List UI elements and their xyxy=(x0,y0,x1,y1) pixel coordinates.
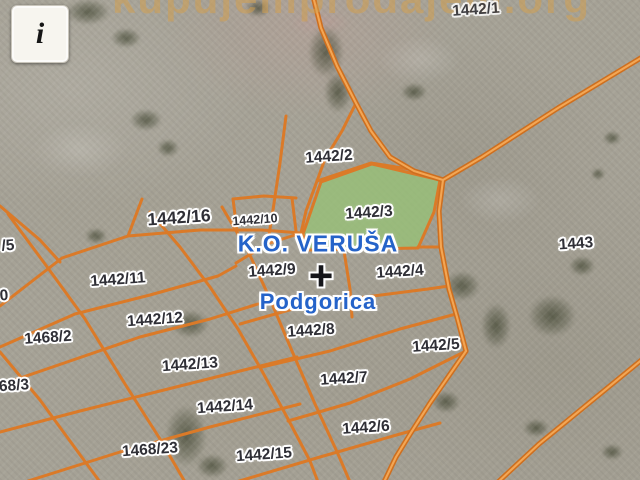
parcel-label-1442-3: 1442/3 xyxy=(345,204,393,223)
parcel-label-1442-4: 1442/4 xyxy=(376,263,424,282)
parcel-label-1442-2: 1442/2 xyxy=(305,148,353,167)
parcel-label-1442-5: 1442/5 xyxy=(412,337,460,356)
cadastral-map-viewer: kupujemprodajem.org 1442/11442/21442/314… xyxy=(0,0,640,480)
parcel-label-1442-10: 1442/10 xyxy=(232,212,278,228)
parcel-label-1442-14: 1442/14 xyxy=(197,397,254,416)
municipality-label: Podgorica xyxy=(260,291,377,313)
parcel-label-1442-12: 1442/12 xyxy=(127,310,184,329)
parcel-label-0: 0 xyxy=(0,288,9,304)
parcel-label-1442-7: 1442/7 xyxy=(320,370,368,389)
parcel-label-1468-2: 1468/2 xyxy=(24,329,72,348)
parcel-label-1442-15: 1442/15 xyxy=(236,445,293,464)
parcel-label-1442-16: 1442/16 xyxy=(147,207,211,229)
parcel-label-1442-1: 1442/1 xyxy=(452,1,500,20)
info-button[interactable]: i xyxy=(11,5,69,63)
parcel-label-1442-9: 1442/9 xyxy=(248,262,296,281)
parcel-label-68-3: 68/3 xyxy=(0,377,30,395)
parcel-label-1442-6: 1442/6 xyxy=(342,419,390,438)
parcel-label--5: /5 xyxy=(1,238,15,254)
parcel-label-1442-8: 1442/8 xyxy=(287,322,335,341)
map-canvas[interactable]: kupujemprodajem.org 1442/11442/21442/314… xyxy=(0,0,640,480)
parcel-label-1442-11: 1442/11 xyxy=(90,270,146,289)
parcel-label-1468-23: 1468/23 xyxy=(122,440,179,459)
parcel-label-1443: 1443 xyxy=(558,235,593,253)
parcel-label-1442-13: 1442/13 xyxy=(162,355,219,374)
